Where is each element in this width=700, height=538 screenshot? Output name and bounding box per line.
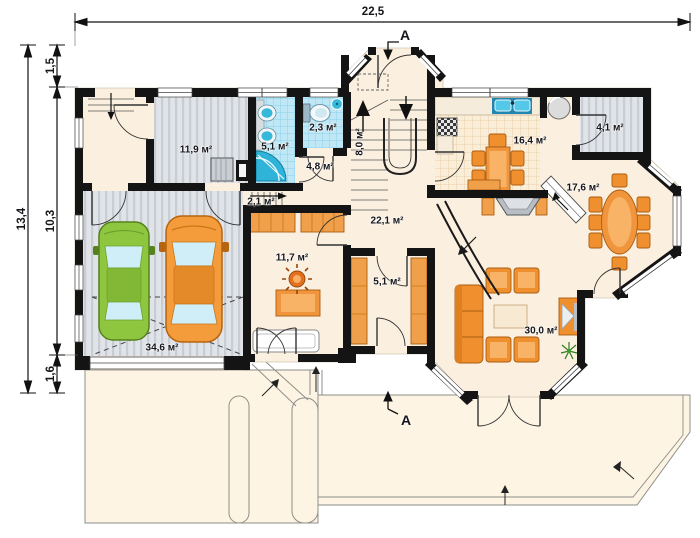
room-area-staircase: 8,0 м² bbox=[355, 128, 366, 155]
floor-plan-drawing bbox=[0, 0, 700, 538]
dim-height-top: 1,5 bbox=[45, 58, 57, 74]
boiler-icon bbox=[211, 158, 249, 181]
orange-car-icon bbox=[159, 216, 229, 342]
utility-room-floor bbox=[154, 97, 248, 183]
dim-height-bottom: 1,6 bbox=[45, 366, 57, 382]
toilet-icon bbox=[303, 104, 330, 122]
wardrobe-icon bbox=[301, 212, 344, 232]
room-area-study: 11,7 м² bbox=[276, 253, 308, 264]
room-area-garage-steps: 2,1 м² bbox=[247, 197, 274, 208]
coffee-table-icon bbox=[494, 305, 527, 328]
room-area-garage: 34,6 м² bbox=[146, 343, 179, 354]
section-label-top: A bbox=[400, 27, 410, 43]
room-area-wardrobe: 5,1 м² bbox=[373, 277, 400, 288]
washbasin-icon bbox=[332, 99, 343, 110]
garage-gate bbox=[90, 357, 224, 369]
section-label-bottom: A bbox=[401, 412, 411, 428]
water-heater-icon bbox=[548, 97, 570, 119]
room-area-utility: 11,9 м² bbox=[180, 145, 212, 156]
dim-width-total: 22,5 bbox=[362, 6, 384, 18]
floor-plan: 22,5 13,4 1,5 10,3 1,6 A A 11,9 м² 5,1 м… bbox=[0, 0, 700, 538]
room-area-dining: 17,6 м² bbox=[567, 183, 600, 194]
green-car-icon bbox=[93, 222, 155, 340]
room-area-bathroom: 5,1 м² bbox=[261, 142, 288, 153]
room-area-kitchen: 16,4 м² bbox=[514, 136, 547, 147]
room-area-hall: 22,1 м² bbox=[371, 216, 404, 227]
dim-height-middle: 10,3 bbox=[45, 210, 57, 232]
fireplace-icon bbox=[559, 298, 578, 335]
stove-icon bbox=[437, 118, 457, 136]
kitchen-sink-icon bbox=[492, 98, 532, 114]
study-sideboard bbox=[253, 330, 319, 352]
room-area-wc: 2,3 м² bbox=[309, 123, 336, 134]
sofa-icon bbox=[455, 285, 483, 363]
dim-height-total: 13,4 bbox=[16, 208, 28, 230]
room-area-living: 30,0 м² bbox=[525, 326, 558, 337]
room-area-pantry: 4,1 м² bbox=[596, 123, 623, 134]
room-area-corridor: 4,8 м² bbox=[306, 162, 333, 173]
